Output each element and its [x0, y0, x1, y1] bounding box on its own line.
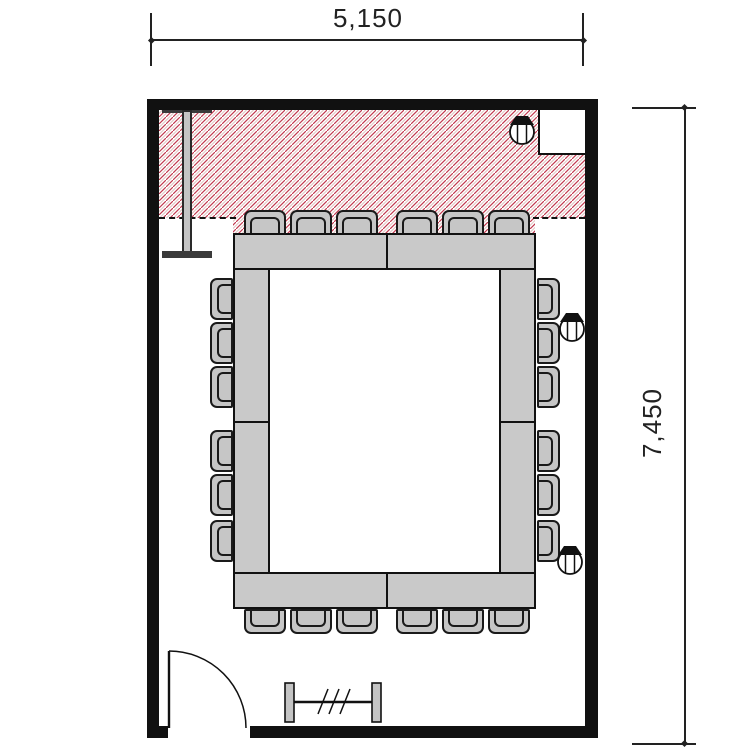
- wall-top: [147, 99, 598, 110]
- chair: [488, 609, 530, 634]
- dimension-top-label: 5,150: [240, 3, 496, 34]
- hatch-boundary-dashed-right: [533, 217, 585, 219]
- screen-stand-pole: [182, 110, 192, 255]
- dimension-right-dot-top: [681, 104, 688, 111]
- conference-table-left: [233, 268, 270, 574]
- chair: [537, 322, 560, 364]
- screen-stand-base-bar: [162, 251, 212, 258]
- chair: [488, 210, 530, 235]
- conference-table-top: [233, 233, 536, 270]
- corner-service-notch: [538, 110, 585, 155]
- chair: [336, 210, 378, 235]
- chair: [290, 609, 332, 634]
- hatch-boundary-dashed-left: [159, 217, 236, 219]
- coat-rack: [282, 681, 384, 725]
- wall-bottom-left-segment: [147, 726, 168, 738]
- outlet-symbol: [558, 310, 586, 343]
- outlet-symbol: [556, 543, 584, 576]
- dimension-top-line: [151, 39, 583, 41]
- wall-right: [585, 99, 598, 738]
- conference-table-right: [499, 268, 536, 574]
- outlet-symbol: [508, 113, 536, 146]
- table-seam: [501, 421, 534, 423]
- chair: [396, 210, 438, 235]
- table-seam: [386, 574, 388, 607]
- chair: [336, 609, 378, 634]
- chair: [244, 210, 286, 235]
- chair: [210, 278, 233, 320]
- wall-bottom-right-segment: [250, 726, 598, 738]
- chair: [210, 520, 233, 562]
- chair: [537, 366, 560, 408]
- chair: [537, 430, 560, 472]
- chair: [442, 609, 484, 634]
- chair: [210, 366, 233, 408]
- door-swing: [158, 645, 254, 733]
- chair: [244, 609, 286, 634]
- floor-plan-canvas: 5,150 7,450: [0, 0, 750, 750]
- dimension-right-dot-bottom: [681, 740, 688, 747]
- chair: [290, 210, 332, 235]
- dimension-right-line: [684, 108, 686, 745]
- table-seam: [235, 421, 268, 423]
- conference-table-bottom: [233, 572, 536, 609]
- chair: [210, 322, 233, 364]
- chair: [537, 474, 560, 516]
- dimension-right-label: 7,450: [619, 386, 685, 460]
- wall-left: [147, 99, 159, 738]
- chair: [210, 474, 233, 516]
- chair: [442, 210, 484, 235]
- chair: [210, 430, 233, 472]
- chair: [537, 278, 560, 320]
- chair: [396, 609, 438, 634]
- table-seam: [386, 235, 388, 268]
